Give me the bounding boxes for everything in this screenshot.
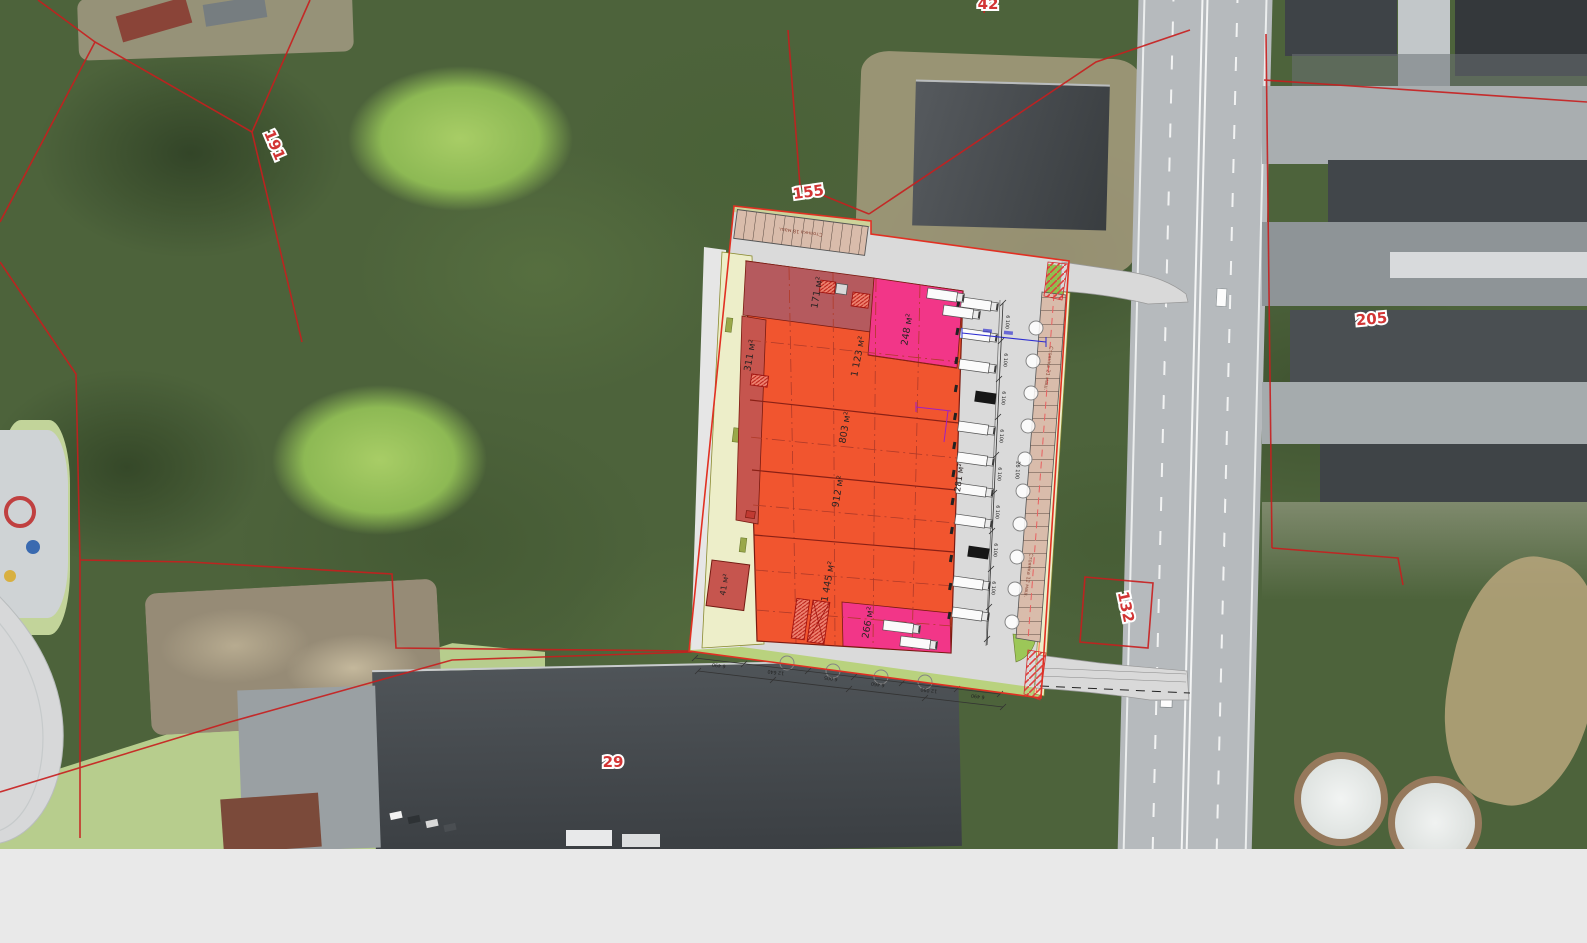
access-road-top bbox=[1060, 262, 1188, 304]
svg-text:6 100: 6 100 bbox=[992, 543, 999, 557]
access-road-bottom bbox=[1035, 655, 1189, 700]
svg-text:6 100: 6 100 bbox=[1004, 315, 1011, 329]
parcel-label-132: 132 bbox=[1114, 590, 1138, 624]
planting-box bbox=[725, 318, 733, 333]
local-road-bottom-left bbox=[0, 592, 63, 844]
svg-text:6 005: 6 005 bbox=[824, 674, 838, 682]
parcel-label-205: 205 bbox=[1355, 309, 1388, 330]
svg-text:12 090: 12 090 bbox=[920, 686, 937, 694]
svg-text:6 100: 6 100 bbox=[998, 429, 1005, 443]
bottom-blank-strip bbox=[0, 849, 1587, 943]
svg-text:6 100: 6 100 bbox=[994, 505, 1001, 519]
aerial-map-viewport[interactable]: Стоянка 18 маш. Стоянка 21 маш. Стоянка … bbox=[0, 0, 1587, 849]
planting-box bbox=[739, 538, 747, 553]
parcel-label-42: 42 bbox=[978, 0, 999, 13]
svg-text:6 460: 6 460 bbox=[871, 680, 885, 688]
svg-text:6 100: 6 100 bbox=[1000, 391, 1007, 405]
building-footprint bbox=[706, 261, 963, 653]
parcel-132-boundary bbox=[1080, 577, 1153, 648]
screenshot-canvas: Стоянка 18 маш. Стоянка 21 маш. Стоянка … bbox=[0, 0, 1587, 943]
dock-total-dimension: 26 100 bbox=[1013, 461, 1020, 480]
parcel-label-191: 191 bbox=[260, 127, 289, 163]
parcel-label-29: 29 bbox=[603, 753, 624, 771]
svg-text:6 490: 6 490 bbox=[971, 692, 985, 700]
svg-text:12 640: 12 640 bbox=[767, 668, 784, 676]
site-plan: Стоянка 18 маш. Стоянка 21 маш. Стоянка … bbox=[689, 206, 1190, 710]
parcel-label-155: 155 bbox=[792, 181, 826, 203]
svg-text:6 100: 6 100 bbox=[996, 467, 1003, 481]
svg-text:6 490: 6 490 bbox=[712, 661, 726, 669]
svg-text:6 100: 6 100 bbox=[990, 581, 997, 595]
svg-text:6 100: 6 100 bbox=[1002, 353, 1009, 367]
site-plan-overlay: Стоянка 18 маш. Стоянка 21 маш. Стоянка … bbox=[0, 0, 1587, 849]
